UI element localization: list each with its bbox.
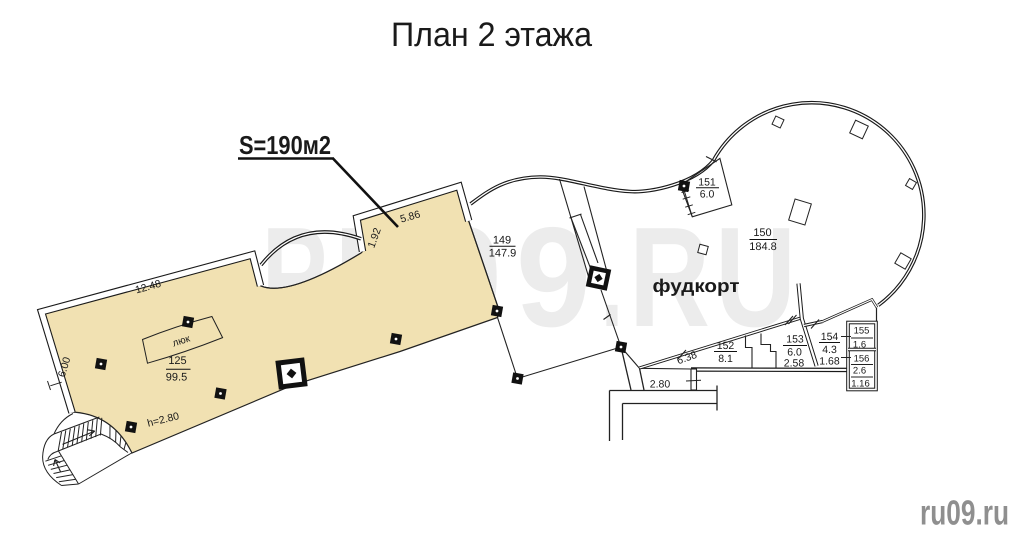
svg-text:6.0: 6.0: [700, 189, 715, 201]
svg-text:ru09.ru: ru09.ru: [920, 494, 1009, 533]
svg-text:4.3: 4.3: [822, 344, 837, 356]
svg-text:153: 153: [786, 334, 804, 346]
svg-text:147.9: 147.9: [489, 248, 517, 260]
svg-text:1.16: 1.16: [851, 379, 870, 390]
svg-text:S=190м2: S=190м2: [239, 130, 331, 160]
svg-text:151: 151: [698, 177, 716, 189]
svg-text:154: 154: [821, 331, 839, 343]
svg-text:1.68: 1.68: [819, 356, 840, 368]
svg-text:2.80: 2.80: [650, 379, 671, 391]
svg-text:152: 152: [717, 340, 735, 352]
svg-text:фудкорт: фудкорт: [653, 275, 740, 296]
svg-text:155: 155: [854, 326, 870, 337]
svg-text:1.6: 1.6: [853, 340, 866, 351]
svg-text:150: 150: [753, 227, 771, 239]
svg-text:2.6: 2.6: [853, 366, 866, 377]
svg-text:99.5: 99.5: [166, 372, 187, 384]
svg-text:156: 156: [854, 354, 870, 365]
svg-text:184.8: 184.8: [749, 241, 777, 253]
svg-text:План 2 этажа: План 2 этажа: [391, 16, 592, 54]
svg-text:2.58: 2.58: [784, 358, 805, 370]
svg-text:149: 149: [493, 235, 511, 247]
svg-text:125: 125: [168, 355, 186, 367]
svg-text:9: 9: [516, 198, 591, 357]
svg-text:8.1: 8.1: [718, 353, 733, 365]
